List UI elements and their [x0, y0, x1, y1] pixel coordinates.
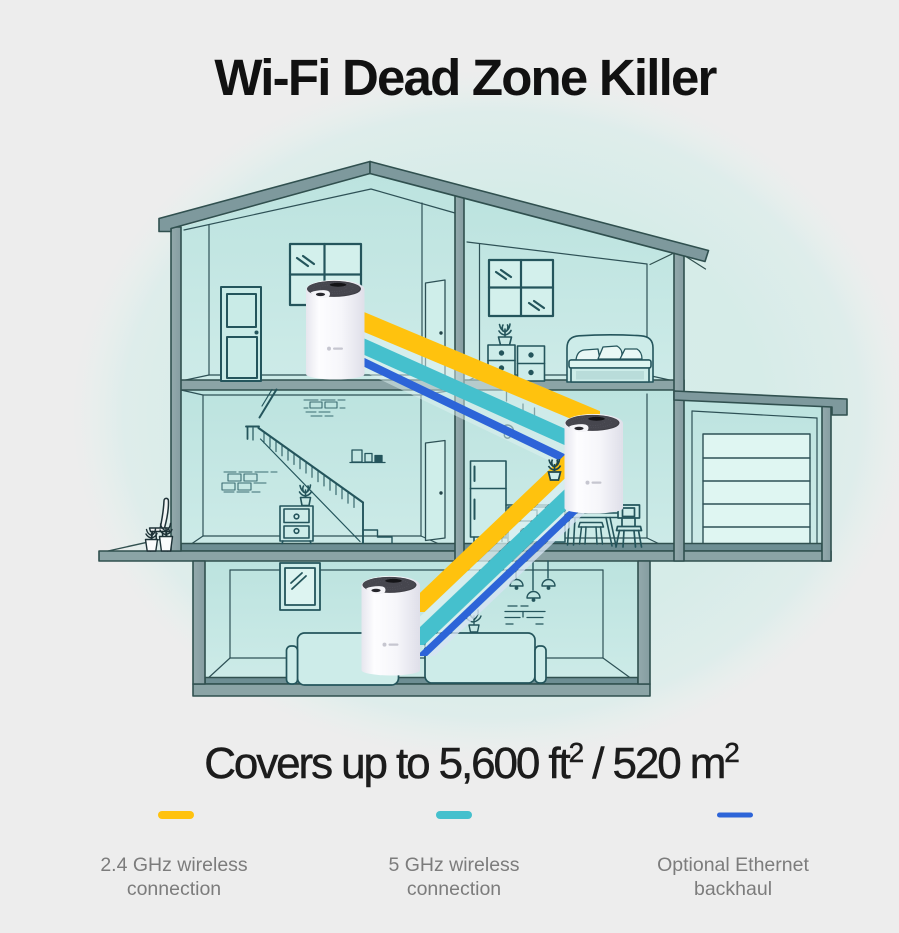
- svg-text:backhaul: backhaul: [694, 878, 772, 900]
- svg-text:Optional Ethernet: Optional Ethernet: [657, 854, 809, 876]
- svg-text:Covers up to 5,600 ft2 / 520 m: Covers up to 5,600 ft2 / 520 m2: [204, 737, 739, 788]
- svg-text:Wi-Fi Dead Zone Killer: Wi-Fi Dead Zone Killer: [214, 49, 717, 106]
- svg-text:connection: connection: [407, 878, 501, 900]
- svg-text:5 GHz wireless: 5 GHz wireless: [388, 854, 519, 876]
- svg-text:connection: connection: [127, 878, 221, 900]
- svg-text:2.4 GHz wireless: 2.4 GHz wireless: [100, 854, 248, 876]
